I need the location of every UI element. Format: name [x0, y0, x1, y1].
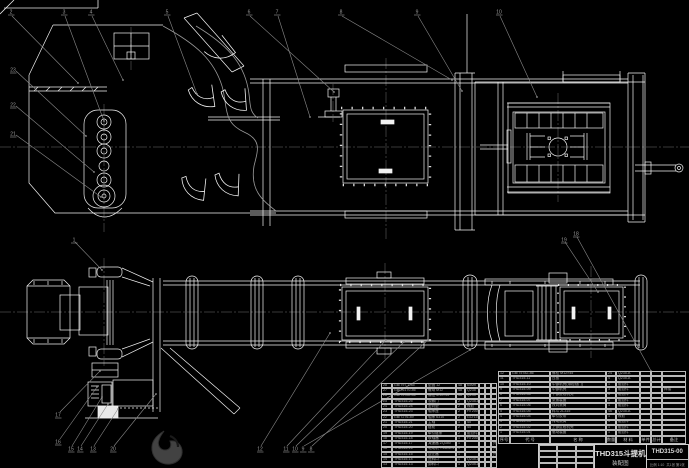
- balloon-number: 11: [283, 447, 288, 453]
- bom-cell: 数量: [606, 436, 616, 444]
- cad-drawing-sheet: 2345678910232221119181716151413201211109…: [0, 0, 689, 468]
- balloon-number: 14: [77, 447, 83, 453]
- bom-cell: THD315-13: [392, 462, 426, 467]
- balloon-number: 10: [292, 447, 298, 453]
- balloon-number: 22: [10, 103, 16, 109]
- bom-cell: 序号: [498, 436, 510, 444]
- bom-cell: 1: [498, 430, 510, 435]
- balloon-number: 6: [248, 10, 251, 16]
- balloon-number: 3: [63, 10, 66, 16]
- balloon-number: 9: [302, 447, 305, 453]
- balloon-number: 9: [416, 10, 419, 16]
- bom-header-row: 序号代 号名 称数量材 料单件总计备注: [498, 436, 686, 444]
- bom-cell: 总计: [651, 436, 662, 444]
- drawing-title: THD315斗提机: [595, 448, 645, 459]
- balloon-number: 8: [340, 10, 343, 16]
- drawing-number: THD315-00: [647, 445, 688, 460]
- bom-cell: [651, 430, 662, 435]
- balloon-number: 8: [310, 447, 313, 453]
- bom-row: 1THD315-01驱动装置1组合件: [498, 430, 686, 435]
- bom-table-left: 28GB/T97.1-85垫圈 124865Mn27GB/T6170-86螺母 …: [381, 383, 497, 468]
- bom-cell: 驱动装置: [550, 430, 606, 435]
- title-block: THD315斗提机 装配图 THD315-00 比例 1:10 共1张 第1张: [538, 444, 689, 468]
- balloon-number: 17: [55, 413, 61, 419]
- centerlines: [0, 27, 689, 366]
- balloon-number: 16: [55, 440, 61, 446]
- bom-row: 13THD315-13卸料口1Q235-A: [381, 462, 497, 467]
- bom-cell: 代 号: [510, 436, 550, 444]
- bom-cell: THD315-01: [510, 430, 550, 435]
- balloon-number: 10: [496, 10, 502, 16]
- bom-cell: 1: [456, 462, 465, 467]
- scale-note: 比例 1:10: [650, 462, 664, 467]
- bom-cell: [662, 430, 686, 435]
- balloon-number: 1: [73, 238, 76, 244]
- bom-cell: 1: [606, 430, 616, 435]
- bom-cell: 备注: [662, 436, 686, 444]
- bom-cell: 卸料口: [426, 462, 456, 467]
- balloon-number: 5: [166, 10, 169, 16]
- balloon-number: 12: [257, 447, 263, 453]
- balloon-number: 18: [573, 232, 579, 238]
- sheet-note: 共1张 第1张: [666, 462, 684, 467]
- balloon-number: 20: [110, 447, 116, 453]
- balloon-number: 7: [276, 10, 279, 16]
- bom-cell: [640, 430, 651, 435]
- balloon-number: 4: [90, 10, 93, 16]
- bom-cell: 13: [381, 462, 392, 467]
- watermark-swirl: [152, 431, 182, 464]
- balloon-number: 19: [561, 238, 567, 244]
- balloon-number: 13: [90, 447, 96, 453]
- bom-cell: [491, 462, 497, 467]
- bom-header: 序号代 号名 称数量材 料单件总计备注: [498, 436, 686, 444]
- sheet-border-corner: [0, 0, 98, 14]
- bom-table-right: 12GB/T5782-86螺栓 M12×4524Q235-A11THD315-1…: [498, 371, 686, 436]
- bom-cell: Q235-A: [465, 462, 479, 467]
- drawing-footer: 比例 1:10 共1张 第1张: [647, 460, 688, 468]
- balloon-number: 15: [68, 447, 74, 453]
- drawing-number-cell: THD315-00 比例 1:10 共1张 第1张: [647, 445, 688, 468]
- bom-cell: 单件: [640, 436, 651, 444]
- drawing-title-cell: THD315斗提机 装配图: [594, 445, 646, 468]
- drawing-subtitle: 装配图: [612, 459, 629, 467]
- bom-cell: 材 料: [616, 436, 640, 444]
- bucket-chain-path: [163, 26, 276, 211]
- bom-cell: 组合件: [616, 430, 640, 435]
- bom-cell: 名 称: [550, 436, 606, 444]
- balloon-number: 21: [10, 132, 16, 138]
- signature-grid: [539, 445, 594, 468]
- balloon-number: 23: [10, 68, 16, 74]
- balloon-number: 2: [10, 10, 13, 16]
- elevation-view: [29, 13, 683, 230]
